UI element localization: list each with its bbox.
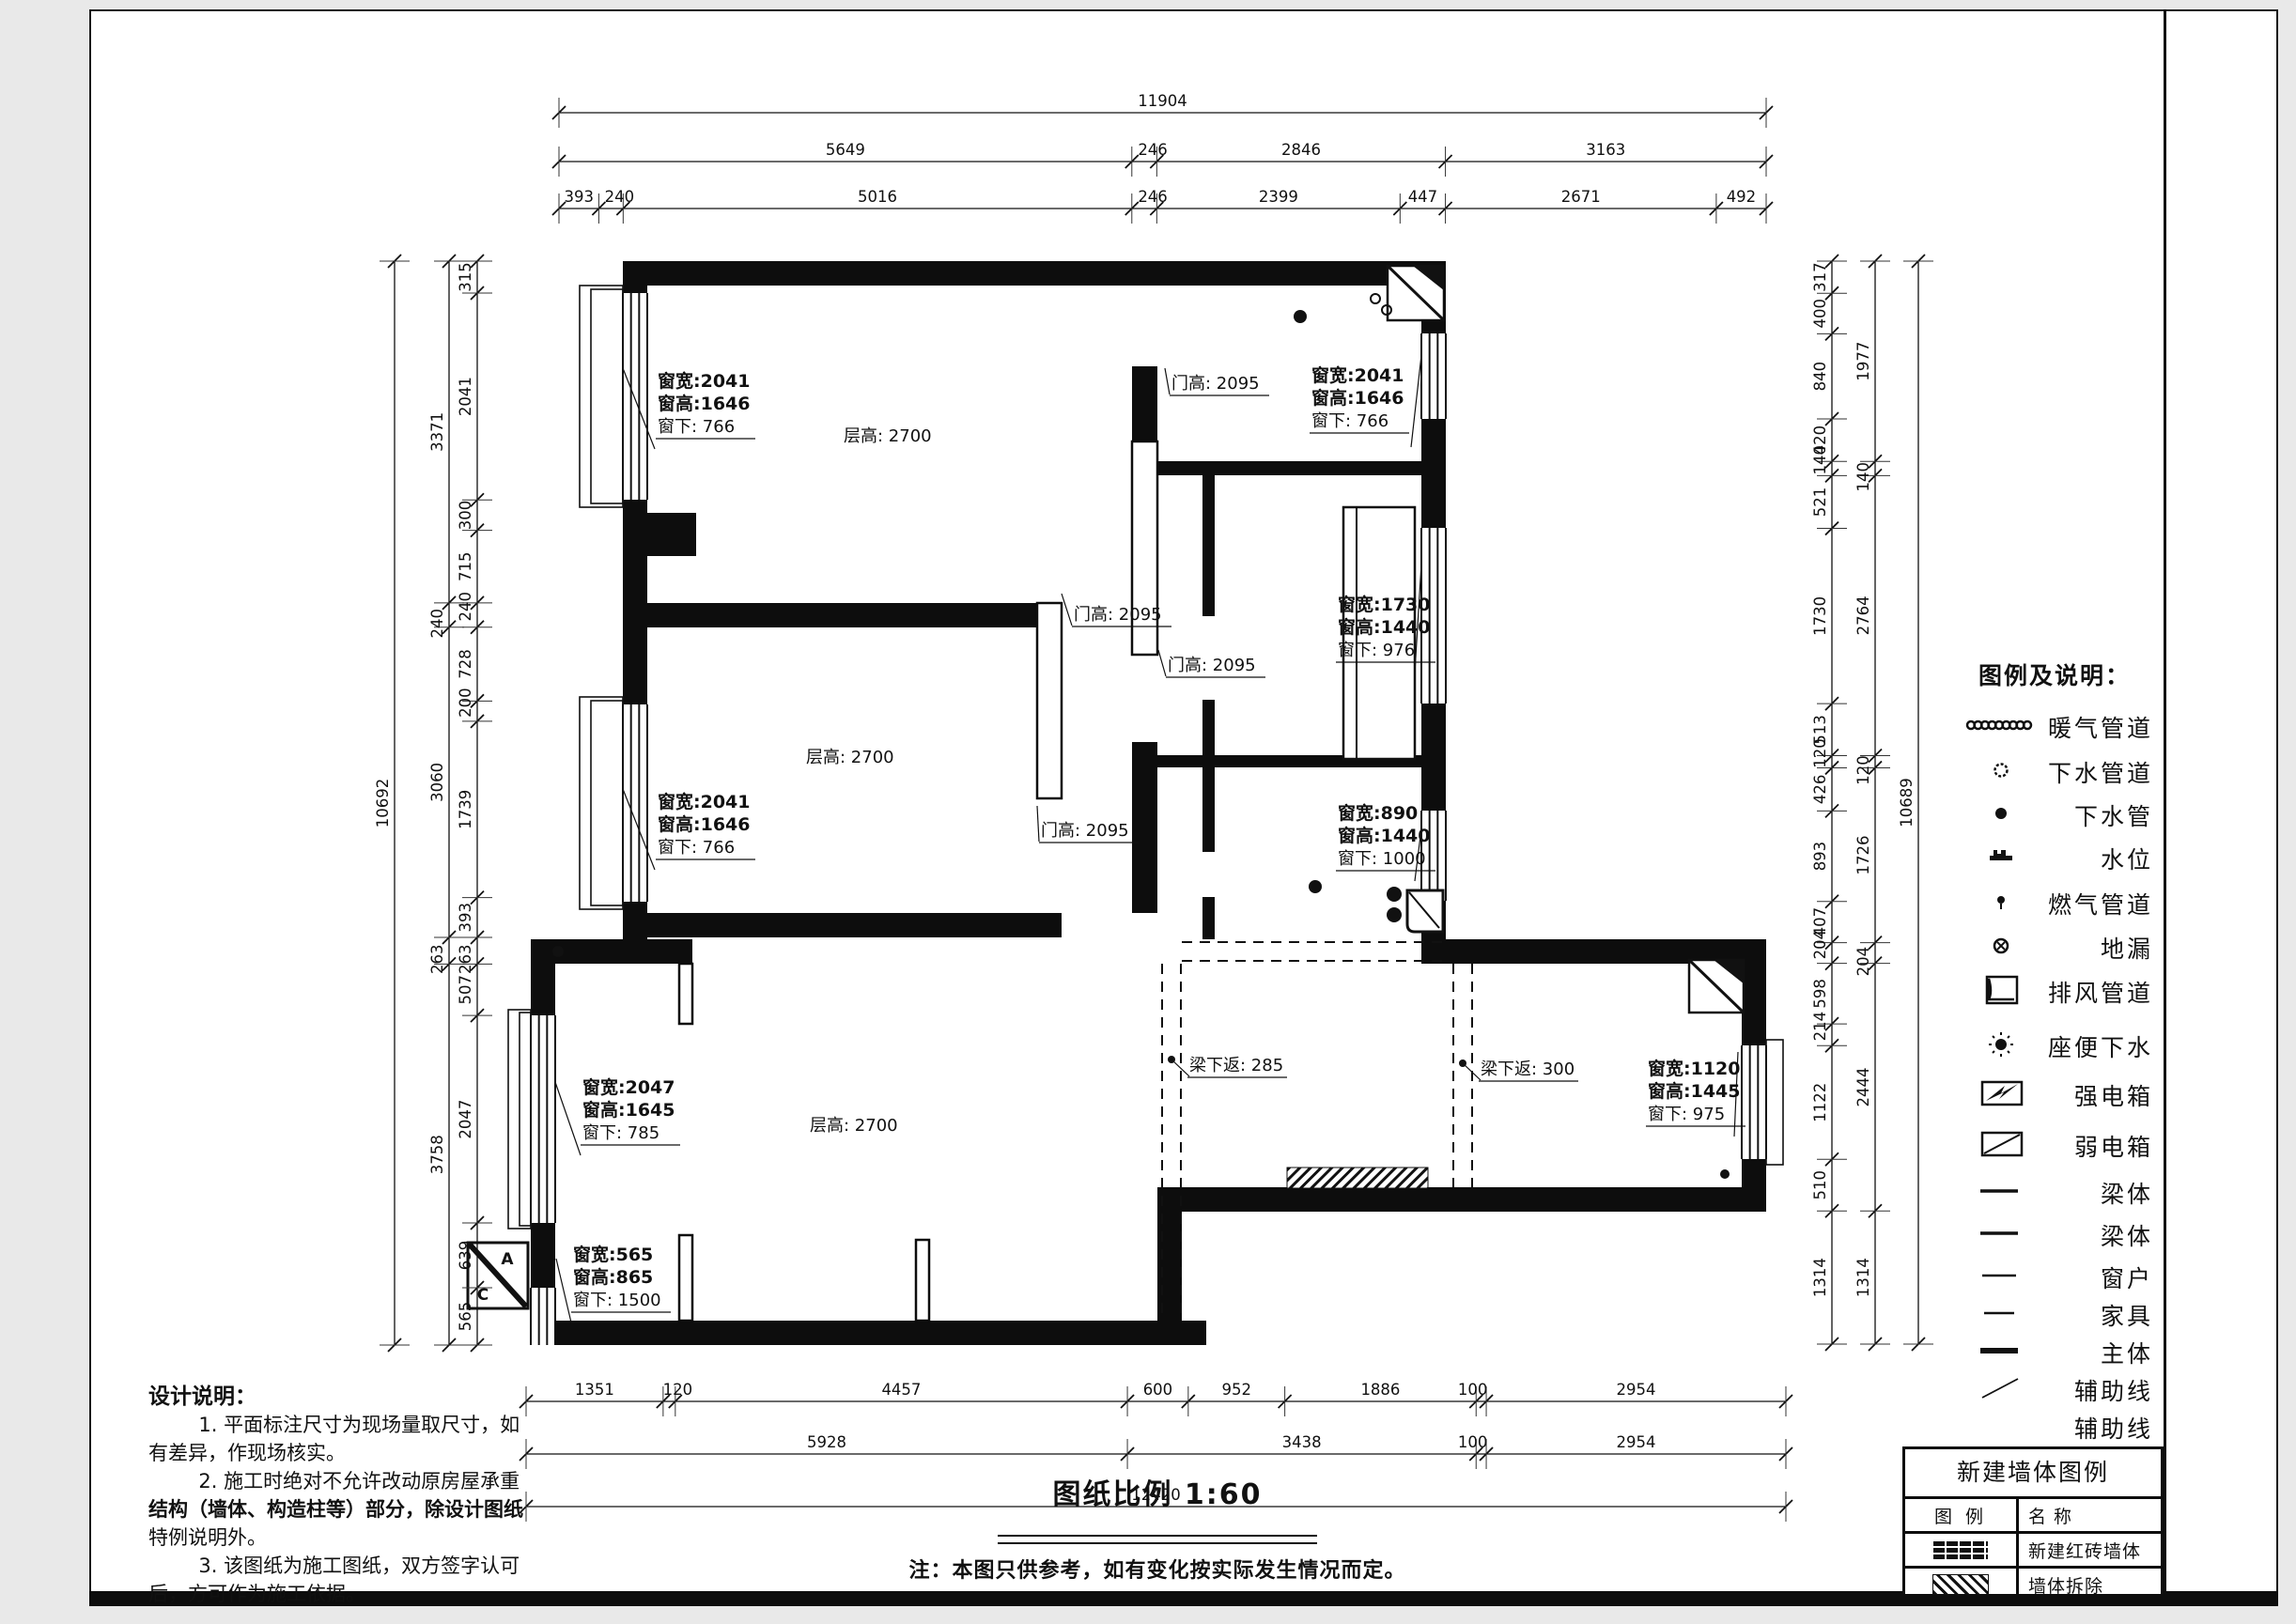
dimension-value: 2764 [1854,595,1872,635]
dimension-value: 1726 [1854,836,1872,875]
drain-dot-icon [552,946,564,957]
callout-text: 窗高:1445 [1648,1080,1740,1102]
legend-item-label: 窗户 [2101,1261,2153,1294]
legend-item: 下水管道 [1963,751,2161,789]
vent-icon [1963,971,2039,1009]
callout-text: 窗下: 1500 [573,1291,661,1310]
window-symbol [1742,1045,1766,1159]
dimension-chain-right-2: 10689 [1898,255,1933,1351]
dimension-value: 5928 [807,1433,846,1451]
callout-text: 窗下: 976 [1338,641,1415,660]
floor-plan-svg: AC 1190456492462846316339324050162462399… [0,0,2296,1624]
dimension-value: 2846 [1281,141,1321,159]
dimension-value: 426 [1811,775,1829,805]
callout-text: 窗宽:2041 [658,370,750,392]
dimension-value: 246 [1138,141,1168,159]
legend-item: 主体 [1963,1332,2161,1369]
legend-item-label: 下水管道 [2048,755,2153,789]
dimension-value: 510 [1811,1170,1829,1200]
wall-segment [1202,700,1215,755]
wall-segment [1421,704,1446,811]
dimension-value: 565 [457,1302,474,1332]
legend-item-label: 梁体 [2101,1176,2153,1210]
dimension-value: 120 [1854,755,1872,785]
callout-text: 窗高:1646 [1311,387,1404,409]
brick-hatch-swatch [1933,1540,1988,1559]
window-bay-frame [580,697,623,909]
dimension-value: 5016 [858,188,897,206]
dimension-value: 400 [1811,299,1829,329]
callout-text: 窗下: 766 [1311,411,1388,431]
partition-wall [916,1240,929,1321]
beam-line-icon [1963,1214,2039,1252]
wall-segment [623,627,647,704]
dimension-value: 521 [1811,487,1829,518]
callout-text: 窗宽:1120 [1648,1058,1740,1079]
wall-segment [623,261,1446,286]
floor-drain-icon [1963,927,2039,965]
dimension-value: 1122 [1811,1083,1829,1122]
wall-segment [623,603,1037,627]
wall-legend-row-brick: 新建红砖墙体 [1905,1534,2161,1569]
disclaimer-note: 注：本图只供参考，如有变化按实际发生情况而定。 [782,1554,1533,1584]
strong-box-icon [1963,1075,2039,1112]
dimension-value: 728 [457,649,474,679]
dimension-value: 5649 [826,141,865,159]
beam-line-icon [1963,1172,2039,1210]
dimension-value: 840 [1811,362,1829,392]
design-note-line: 结构（墙体、构造柱等）部分，除设计图纸 [148,1495,590,1523]
partition-wall [1037,603,1062,798]
drain-dot-icon [1294,310,1307,323]
dimension-value: 263 [428,944,446,973]
dimension-value: 100 [1458,1433,1488,1451]
wall-legend-col-symbol: 图 例 [1905,1499,2019,1531]
dimension-value: 492 [1727,188,1757,206]
dimension-value: 507 [457,975,474,1005]
callout-text: 窗宽:565 [573,1244,653,1265]
callout-window: 窗宽:1120窗高:1445窗下: 975 [1646,1052,1745,1137]
legend-item: 窗户 [1963,1257,2161,1294]
legend-title: 图例及说明： [1978,657,2131,691]
design-note-line: 3. 该图纸为施工图纸，双方签字认可 [148,1552,590,1580]
water-level-icon [1963,838,2039,875]
toilet-icon [1387,887,1443,932]
wall-segment [1742,964,1766,1045]
dimension-value: 100 [1458,1381,1488,1399]
wall-legend-row-brick-label: 新建红砖墙体 [2019,1534,2161,1566]
window-symbol [623,293,647,500]
dimension-value: 1314 [1854,1258,1872,1297]
window-symbol [531,1015,555,1223]
legend-item: 辅助线 [1963,1407,2161,1445]
legend-item-label: 梁体 [2101,1218,2153,1252]
wall-segment [1202,767,1215,852]
design-note-line: 1. 平面标注尺寸为现场量取尺寸，如 [148,1411,590,1439]
dimension-value: 120 [1811,738,1829,768]
dimension-chain-top-1: 564924628463163 [552,141,1773,177]
dimension-value: 315 [457,262,474,292]
dimension-value: 140 [1854,462,1872,492]
dimension-value: 2954 [1617,1433,1656,1451]
callout-text: 窗宽:1730 [1338,594,1430,615]
callout-text: 窗下: 766 [658,417,735,437]
gas-icon [1963,883,2039,920]
wall-segment [1132,366,1157,441]
drain-open-icon [1963,751,2039,789]
dimension-chain-right-1: 19771402764120172620424441314 [1854,255,1890,1351]
dimension-value: 447 [1408,188,1438,206]
beam-dashed-layer [1162,942,1472,1321]
design-note-line: 2. 施工时绝对不允许改动原房屋承重 [148,1467,590,1495]
legend-item: 弱电箱 [1963,1125,2161,1163]
legend-item: 暖气管道 [1963,706,2161,744]
legend-item: 水位 [1963,838,2161,875]
dimension-chain-left-2: 3152041300715240728200173939326350720476… [457,255,492,1352]
legend-item: 家具 [1963,1294,2161,1332]
wall-segment [1157,1212,1182,1345]
none-icon [1963,1407,2039,1445]
dimension-value: 263 [457,944,474,973]
wall-legend-header-row: 图 例 名 称 [1905,1499,2161,1534]
wall-segment [623,913,1062,937]
legend-item: 梁体 [1963,1214,2161,1252]
callout-text: 窗高:1440 [1338,616,1430,638]
window-bay-frame [1766,1040,1783,1165]
wall-segment [1202,475,1215,616]
main-line-icon [1963,1332,2039,1369]
design-note-line: 有差异，作现场核实。 [148,1439,590,1467]
legend-item-label: 下水管 [2074,798,2153,832]
wall-segment [1132,742,1157,913]
wall-segment [1157,461,1421,475]
dimension-value: 2444 [1854,1067,1872,1106]
wall-segment [647,513,696,556]
callout-text: 梁下返: 285 [1189,1056,1283,1075]
callout-door: 门高: 2095 [1158,650,1265,677]
callout-text: 窗高:1646 [658,813,750,835]
legend-item-label: 家具 [2101,1298,2153,1332]
callout-text: 窗宽:890 [1338,802,1418,824]
dimension-value: 639 [457,1241,474,1271]
callout-beam: 梁下返: 285 [1171,1056,1287,1077]
legend-item-label: 强电箱 [2074,1078,2153,1112]
legend-item: 辅助线 [1963,1369,2161,1407]
dimension-value: 393 [564,188,594,206]
wall-segment [1157,1187,1766,1212]
legend-item: 排风管道 [1963,971,2161,1009]
legend-item-label: 燃气管道 [2048,887,2153,920]
hatch-swatch-cell [1905,1569,2019,1601]
dimension-chain-bottom-0: 1351120445760095218861002954 [520,1381,1792,1416]
design-notes: 设计说明： 1. 平面标注尺寸为现场量取尺寸，如有差异，作现场核实。 2. 施工… [148,1383,590,1608]
drain-dot-icon [1963,795,2039,832]
dimension-chain-bottom-1: 592834381002954 [520,1433,1792,1469]
dimension-value: 200 [457,688,474,718]
callout-text: 窗下: 1000 [1338,849,1426,869]
dimension-value: 600 [1143,1381,1173,1399]
dimension-value: 240 [457,592,474,622]
dimension-chain-right-0: 3174008404201405211730513120426893407204… [1811,255,1847,1351]
callout-text: 门高: 2095 [1171,374,1260,394]
wall-segment [531,1223,555,1288]
design-note-line: 后，方可作为施工依据。 [148,1580,590,1608]
legend-item-label: 弱电箱 [2074,1129,2153,1163]
window-bay-frame [591,289,623,503]
dimension-value: 300 [457,501,474,531]
dimension-value: 11904 [1138,92,1187,110]
legend-item: 下水管 [1963,795,2161,832]
dimension-value: 1730 [1811,596,1829,636]
window-bay-frame [520,1013,531,1226]
dimension-value: 3438 [1282,1433,1322,1451]
legend-item-label: 暖气管道 [2048,710,2153,744]
dimension-value: 240 [428,609,446,639]
legend-panel: 图例及说明： 暖气管道下水管道下水管水位燃气管道地漏排风管道座便下水强电箱弱电箱… [1963,657,2161,1437]
toilet-drain-icon [1963,1026,2039,1063]
scale-underline [998,1535,1317,1544]
dimension-value: 4457 [881,1381,921,1399]
callout-text: 窗下: 975 [1648,1105,1725,1124]
furniture-line-icon [1963,1294,2039,1332]
callout-text: 窗宽:2041 [1311,364,1404,386]
wall-legend-table: 新建墙体图例 图 例 名 称 新建红砖墙体 墙体拆除 [1902,1446,2164,1597]
window-bay-frame [591,701,623,905]
weak-box-icon [1963,1125,2039,1163]
callout-window: 窗宽:2047窗高:1645窗下: 785 [555,1076,680,1155]
design-note-line: 设计说明： [148,1383,590,1411]
dimension-value: 3163 [1586,141,1625,159]
partition-wall [679,964,692,1024]
dimension-value: 598 [1811,979,1829,1009]
drain-dot-icon [1720,1169,1730,1179]
dimension-value: 952 [1221,1381,1251,1399]
dimension-value: 2041 [457,377,474,416]
legend-item-label: 水位 [2101,842,2153,875]
aux-line-icon [1963,1369,2039,1407]
dimension-value: 3060 [428,763,446,802]
dimension-chain-top-2: 393240501624623994472671492 [552,188,1773,224]
window-symbol [531,1288,555,1345]
dimension-value: 1739 [457,790,474,829]
legend-item-label: 地漏 [2101,931,2153,965]
dimension-value: 1314 [1811,1258,1829,1297]
callout-beam: 梁下返: 300 [1463,1059,1578,1081]
window-symbol [1421,333,1446,419]
callout-door: 门高: 2095 [1165,368,1269,395]
legend-item: 梁体 [1963,1172,2161,1210]
vent-fan-icon [1388,266,1444,320]
wall-legend-col-name: 名 称 [2019,1499,2161,1531]
drawing-canvas: AC 1190456492462846316339324050162462399… [0,0,2296,1624]
dimension-value: 1886 [1360,1381,1400,1399]
legend-item-label: 辅助线 [2074,1411,2153,1445]
callout-text: 窗高:1646 [658,393,750,414]
window-symbol [1421,528,1446,704]
callout-text: 窗下: 785 [582,1123,659,1143]
window-line-icon [1963,1257,2039,1294]
legend-item: 地漏 [1963,927,2161,965]
dimension-value: 214 [1811,1012,1829,1042]
dimension-value: 120 [663,1381,693,1399]
wall-segment [623,500,647,603]
design-note-line: 特例说明外。 [148,1523,590,1552]
callout-height: 层高: 2700 [806,748,894,767]
dimension-value: 2399 [1259,188,1298,206]
dimension-value: 317 [1811,262,1829,292]
dimension-value: 2954 [1617,1381,1656,1399]
wall-segment [1421,419,1446,528]
dimension-value: 3758 [428,1135,446,1174]
wall-legend-row-demolish: 墙体拆除 [1905,1569,2161,1601]
callout-text: 梁下返: 300 [1481,1059,1575,1079]
legend-item-label: 排风管道 [2048,975,2153,1009]
callout-text: 门高: 2095 [1041,821,1129,841]
callout-text: 门高: 2095 [1168,656,1256,675]
dimension-value: 1977 [1854,342,1872,381]
callout-text: 窗宽:2047 [582,1076,675,1098]
legend-item: 强电箱 [1963,1075,2161,1112]
callout-height: 层高: 2700 [844,426,932,446]
scale-label: 图纸比例 1:60 [970,1471,1345,1512]
callout-text: 门高: 2095 [1074,605,1162,625]
dimension-value: 715 [457,552,474,582]
radiator-icon [1963,706,2039,744]
demolished-wall-hatch [1287,1168,1428,1188]
callout-window: 窗宽:565窗高:865窗下: 1500 [556,1244,671,1322]
wall-segment [531,1321,1206,1345]
dimension-value: 10692 [374,779,392,828]
callout-text: 层高: 2700 [806,748,894,767]
window-bay-frame [580,286,623,507]
wall-legend-row-demolish-label: 墙体拆除 [2019,1569,2161,1601]
dimension-value: 204 [1811,930,1829,960]
legend-item: 燃气管道 [1963,883,2161,920]
callout-height: 层高: 2700 [810,1116,898,1136]
drain-dot-icon [1309,880,1322,893]
callout-text: 层高: 2700 [810,1116,898,1136]
dimension-value: 246 [1138,188,1168,206]
dimension-value: 893 [1811,842,1829,872]
dimension-chain-left-0: 10692 [374,255,410,1352]
dimension-value: 204 [1854,947,1872,977]
gas-pipe-icon [1371,294,1380,303]
vent-fan-icon [1689,960,1744,1013]
callout-door: 门高: 2095 [1037,806,1139,843]
wall-segment [1202,897,1215,939]
brick-swatch-cell [1905,1534,2019,1566]
elevation-letter-c: C [477,1286,489,1305]
wall-segment [623,261,647,293]
wall-segment [1742,1159,1766,1212]
legend-item-label: 辅助线 [2074,1373,2153,1407]
diagonal-hatch-swatch [1932,1574,1989,1595]
dimension-value: 393 [457,903,474,933]
dimension-value: 3371 [428,412,446,452]
dimension-value: 2047 [457,1100,474,1139]
dimension-value: 2671 [1561,188,1601,206]
wall-legend-title: 新建墙体图例 [1905,1449,2161,1499]
callout-text: 窗高:865 [573,1266,653,1288]
callout-text: 窗下: 766 [658,838,735,858]
window-symbol [623,704,647,902]
callout-text: 层高: 2700 [844,426,932,446]
legend-item-label: 座便下水 [2048,1029,2153,1063]
elevation-letter-a: A [501,1250,514,1269]
legend-item: 座便下水 [1963,1026,2161,1063]
callout-window: 窗宽:2041窗高:1646窗下: 766 [1310,355,1421,447]
dimension-chain-top-0: 11904 [552,92,1773,128]
legend-item-label: 主体 [2101,1336,2153,1369]
callout-text: 窗高:1645 [582,1099,675,1121]
partition-wall [679,1235,692,1321]
callout-text: 窗宽:2041 [658,791,750,812]
dimension-value: 140 [1811,445,1829,475]
callout-text: 窗高:1440 [1338,825,1430,846]
dimension-value: 10689 [1898,778,1916,827]
dimension-value: 240 [605,188,635,206]
